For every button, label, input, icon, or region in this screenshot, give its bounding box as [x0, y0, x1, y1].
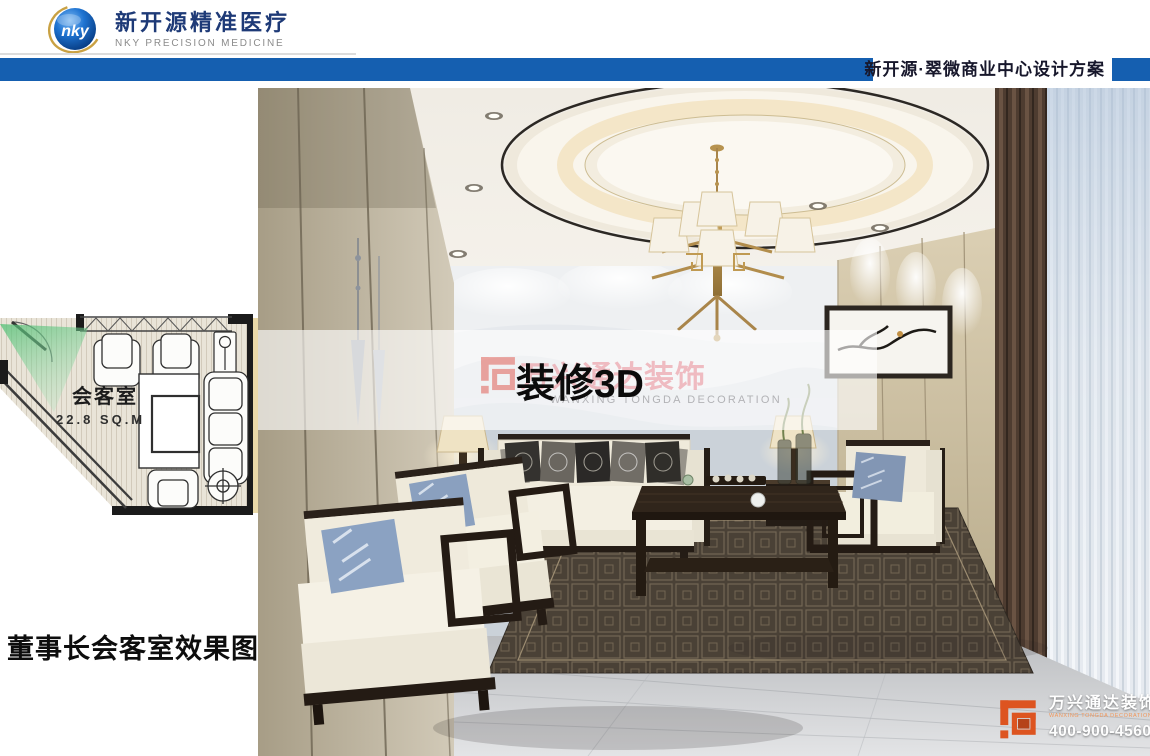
design-proposal-slide: nky 新开源精准医疗 NKY PRECISION MEDICINE 新开源·翠… [0, 0, 1150, 756]
company-logo: nky 新开源精准医疗 NKY PRECISION MEDICINE [46, 3, 290, 55]
watermark-band: 万兴通达装饰 WANXING TONGDA DECORATION 装修3D [258, 330, 877, 430]
title-bar: 新开源·翠微商业中心设计方案 [0, 58, 1150, 81]
plan-sofa [204, 372, 248, 484]
blue-pillow [321, 519, 404, 594]
curtain-sheer [1047, 88, 1150, 710]
ceiling-recess [502, 88, 988, 248]
watermark-title: 装修3D [516, 353, 644, 409]
corner-watermark-company-en: WANXING TONGDA DECORATION [1049, 713, 1150, 720]
company-name-cn: 新开源精准医疗 [115, 10, 290, 36]
plan-floor-lamp [214, 332, 236, 376]
plan-chair-bottom [148, 470, 198, 508]
wanxing-logo-icon-faint [476, 348, 520, 400]
title-bar-right-segment [1112, 58, 1150, 81]
project-title: 新开源·翠微商业中心设计方案 [864, 58, 1105, 81]
company-name: 新开源精准医疗 NKY PRECISION MEDICINE [115, 10, 290, 49]
nky-logo-icon: nky [46, 3, 104, 55]
sofa-pillows [500, 441, 688, 485]
plan-room-name: 会客室 [72, 384, 138, 408]
wanxing-logo-icon [995, 693, 1041, 743]
corner-watermark-company: 万兴通达装饰 [1049, 695, 1150, 713]
curtain-brown [995, 88, 1047, 696]
floor-shadow [433, 706, 803, 750]
title-bar-left-segment [0, 58, 873, 81]
floor-shadow [728, 632, 1048, 664]
render-caption: 董事长会客室效果图 [7, 627, 259, 666]
company-name-en: NKY PRECISION MEDICINE [115, 38, 290, 49]
plan-room-area: 22.8 SQ.M [56, 412, 145, 427]
corner-watermark-phone: 400-900-4560 [1049, 723, 1150, 741]
corner-watermark: 万兴通达装饰 WANXING TONGDA DECORATION 400-900… [995, 693, 1150, 743]
header-divider [0, 53, 356, 55]
plan-table [139, 374, 199, 468]
nky-logo-acronym: nky [61, 23, 90, 40]
plan-armchair [94, 334, 140, 386]
blue-pillow [852, 452, 906, 502]
floor-plan-drawing: 会客室 22.8 SQ.M [0, 310, 258, 518]
